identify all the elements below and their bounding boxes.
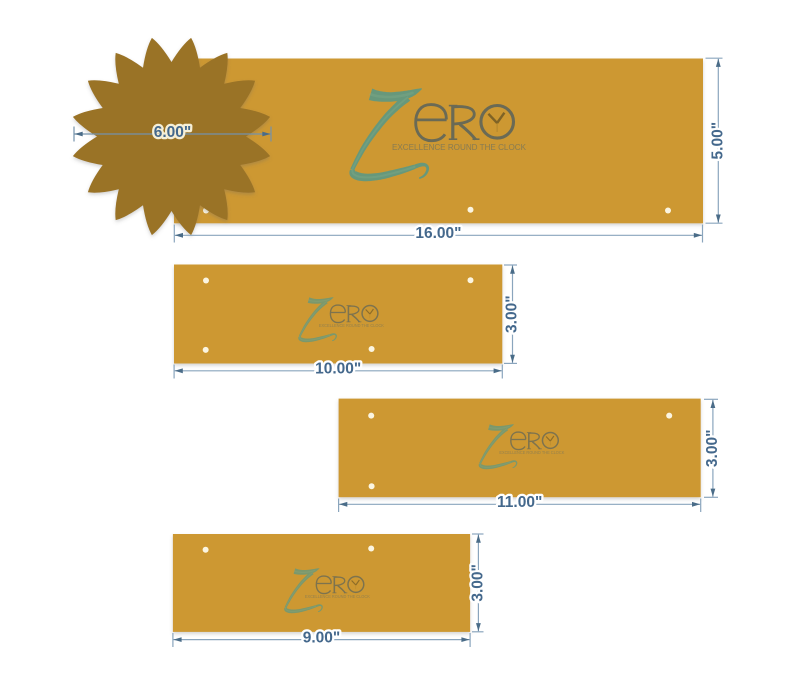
svg-text:10.00": 10.00": [315, 361, 361, 378]
svg-text:6.00": 6.00": [154, 124, 192, 141]
svg-text:3.00": 3.00": [704, 430, 721, 468]
svg-text:3.00": 3.00": [469, 564, 486, 602]
svg-text:11.00": 11.00": [497, 494, 542, 511]
svg-text:16.00": 16.00": [415, 225, 461, 242]
svg-text:3.00": 3.00": [504, 295, 521, 333]
svg-text:9.00": 9.00": [303, 629, 341, 646]
svg-text:5.00": 5.00": [709, 122, 726, 160]
